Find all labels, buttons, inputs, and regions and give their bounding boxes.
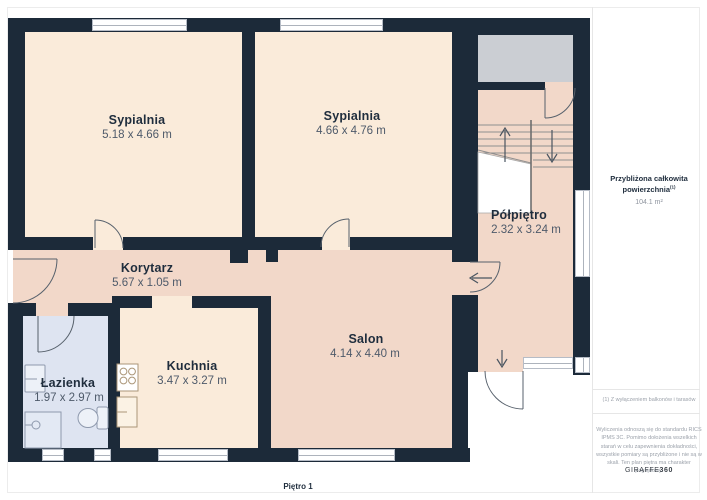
total-area-label-line2: powierzchnia: [622, 185, 670, 194]
stair-arrow-up-icon: [500, 128, 510, 162]
room-dims-bedroom1: 5.18 x 4.66 m: [102, 129, 172, 141]
door-bedroom1: [95, 220, 123, 248]
room-label-halflanding: Półpiętro: [491, 208, 547, 222]
room-dims-kitchen: 3.47 x 3.27 m: [157, 375, 227, 387]
sidebar-rule-1: [592, 389, 700, 390]
room-label-kitchen: Kuchnia: [167, 359, 218, 373]
kitchen-sink-icon: [117, 397, 137, 427]
room-label-bedroom2: Sypialnia: [324, 109, 381, 123]
toilet-icon: [78, 407, 108, 429]
brand-name-bold: 360: [660, 467, 673, 474]
total-area-label: Przybliżona całkowita powierzchnia(1): [594, 173, 704, 196]
room-label-bedroom1: Sypialnia: [109, 113, 166, 127]
room-dims-halflanding: 2.32 x 3.24 m: [491, 224, 561, 236]
room-dims-corridor: 5.67 x 1.05 m: [112, 277, 182, 289]
floorplan-page: Sypialnia 5.18 x 4.66 m Sypialnia 4.66 x…: [0, 0, 707, 500]
door-balcony: [545, 88, 575, 118]
room-label-corridor: Korytarz: [121, 261, 173, 275]
room-dims-bedroom2: 4.66 x 4.76 m: [316, 125, 386, 137]
giraffe360-logo: GIRAFFE360: [594, 467, 704, 474]
room-dims-salon: 4.14 x 4.40 m: [330, 348, 400, 360]
entry-arrow-left-icon: [470, 273, 492, 283]
cooktop-icon: [117, 364, 138, 391]
floor-label: Piętro 1: [283, 482, 312, 491]
plan-details-layer: [0, 0, 707, 500]
door-bathroom: [38, 316, 74, 352]
door-corridor-exterior: [13, 259, 57, 303]
door-bedroom2: [321, 219, 349, 247]
room-label-bathroom: Łazienka: [41, 376, 95, 390]
room-dims-bathroom: 1.97 x 2.97 m: [34, 392, 104, 404]
sidebar-rule-2: [592, 413, 700, 414]
total-area-label-line1: Przybliżona całkowita: [610, 174, 688, 183]
shower-icon: [25, 412, 61, 448]
total-area-footnote-marker: (1): [670, 185, 676, 190]
door-vestibule-exterior: [485, 371, 523, 409]
room-label-salon: Salon: [348, 332, 383, 346]
total-area-value: 104.1 m²: [594, 199, 704, 206]
vestibule-arrow-down-icon: [497, 350, 507, 367]
area-footnote: (1) Z wyłączeniem balkonów i tarasów: [594, 397, 704, 403]
door-salon-halflanding: [470, 262, 500, 292]
brand-name-regular: GIRAFFE: [625, 467, 660, 474]
